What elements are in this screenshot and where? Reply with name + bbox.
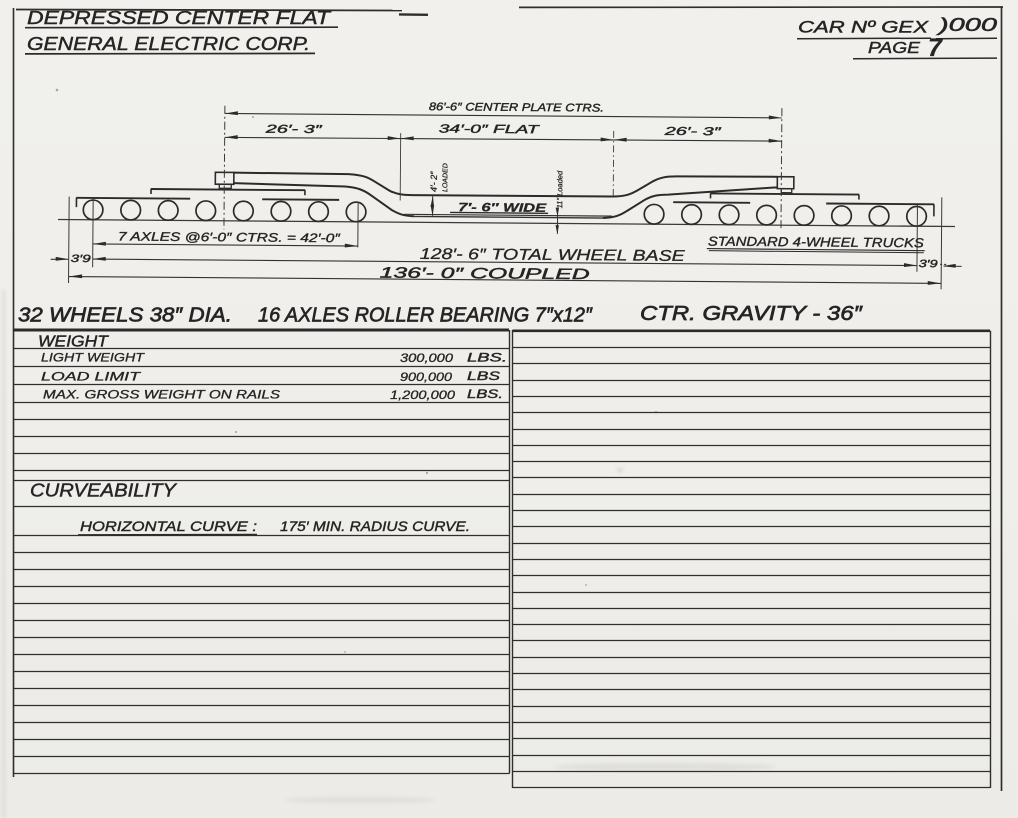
svg-text:16 AXLES ROLLER BEARING 7″x12″: 16 AXLES ROLLER BEARING 7″x12″ xyxy=(258,304,593,327)
svg-text:STANDARD 4-WHEEL TRUCKS: STANDARD 4-WHEEL TRUCKS xyxy=(708,234,924,251)
svg-text:LOADED: LOADED xyxy=(442,163,449,192)
svg-text:CTR. GRAVITY - 36″: CTR. GRAVITY - 36″ xyxy=(640,302,863,325)
svg-text:26′- 3″: 26′- 3″ xyxy=(663,126,722,138)
svg-text:DEPRESSED CENTER FLAT: DEPRESSED CENTER FLAT xyxy=(27,7,332,28)
svg-text:CAR Nº GEX: CAR Nº GEX xyxy=(798,19,929,37)
svg-text:LBS.: LBS. xyxy=(467,353,507,365)
svg-text:3′9: 3′9 xyxy=(919,258,938,270)
svg-text:LOAD LIMIT: LOAD LIMIT xyxy=(41,372,142,384)
svg-text:3′9: 3′9 xyxy=(71,253,91,265)
svg-text:LBS.: LBS. xyxy=(467,389,503,401)
svg-text:HORIZONTAL CURVE :: HORIZONTAL CURVE : xyxy=(80,519,257,534)
svg-text:7 AXLES @6′-0″ CTRS. = 42′-0″: 7 AXLES @6′-0″ CTRS. = 42′-0″ xyxy=(118,229,341,245)
svg-text:32 WHEELS 38″ DIA.: 32 WHEELS 38″ DIA. xyxy=(18,304,232,327)
svg-text:11″ Loaded: 11″ Loaded xyxy=(555,170,564,208)
svg-text:LIGHT WEIGHT: LIGHT WEIGHT xyxy=(41,353,145,365)
svg-text:175′ MIN. RADIUS CURVE.: 175′ MIN. RADIUS CURVE. xyxy=(280,519,470,534)
svg-text:CURVEABILITY: CURVEABILITY xyxy=(30,480,178,501)
svg-text:1,200,000: 1,200,000 xyxy=(390,388,455,402)
svg-text:LBS: LBS xyxy=(467,371,500,383)
svg-text:GENERAL ELECTRIC CORP.: GENERAL ELECTRIC CORP. xyxy=(27,34,310,54)
svg-text:86′-6″ CENTER PLATE CTRS.: 86′-6″ CENTER PLATE CTRS. xyxy=(429,101,604,114)
svg-text:)000: )000 xyxy=(936,14,998,35)
svg-text:136′- 0″ COUPLED: 136′- 0″ COUPLED xyxy=(380,265,590,284)
svg-text:PAGE: PAGE xyxy=(868,40,920,57)
svg-text:26′- 3″: 26′- 3″ xyxy=(264,124,323,136)
svg-text:WEIGHT: WEIGHT xyxy=(38,334,109,351)
svg-text:300,000: 300,000 xyxy=(400,351,453,365)
svg-text:MAX. GROSS WEIGHT ON RAILS: MAX. GROSS WEIGHT ON RAILS xyxy=(43,390,280,402)
svg-text:900,000: 900,000 xyxy=(400,370,452,384)
svg-text:128′- 6″ TOTAL WHEEL BASE: 128′- 6″ TOTAL WHEEL BASE xyxy=(420,246,686,265)
svg-text:4′- 2″: 4′- 2″ xyxy=(429,171,439,192)
svg-text:34′-0″ FLAT: 34′-0″ FLAT xyxy=(439,121,540,136)
